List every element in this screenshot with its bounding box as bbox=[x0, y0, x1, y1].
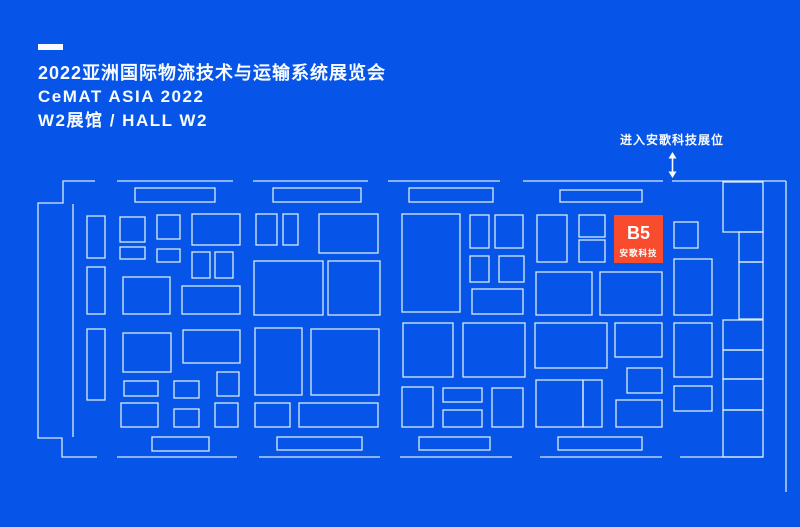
booth-rect bbox=[723, 182, 763, 232]
booth-rect bbox=[403, 323, 453, 377]
booth-rect bbox=[674, 386, 712, 411]
booth-rect bbox=[182, 286, 240, 314]
booth-rect bbox=[319, 214, 378, 253]
booth-rect bbox=[174, 381, 199, 398]
booth-rect bbox=[739, 262, 763, 319]
booth-rect bbox=[120, 217, 145, 242]
booth-rect bbox=[470, 256, 489, 282]
booth-rect bbox=[463, 323, 525, 377]
booth-rect bbox=[174, 409, 199, 427]
booth-rect bbox=[328, 261, 380, 315]
booth-b5-company: 安歌科技 bbox=[619, 248, 657, 258]
booth-rect bbox=[537, 215, 567, 262]
booth-rect bbox=[121, 403, 158, 427]
booth-rect bbox=[723, 320, 763, 350]
booth-rect bbox=[157, 215, 180, 239]
booth-rect bbox=[87, 267, 105, 314]
booth-rect bbox=[723, 379, 763, 410]
booth-rect bbox=[472, 289, 523, 314]
booth-rect bbox=[558, 437, 642, 450]
booth-rect bbox=[470, 215, 489, 248]
booth-rect bbox=[183, 330, 240, 363]
booth-rect bbox=[255, 403, 290, 427]
booth-rect bbox=[495, 215, 523, 248]
hall-wall-line bbox=[38, 181, 97, 457]
booth-rect bbox=[123, 333, 171, 372]
booth-rect bbox=[409, 188, 493, 202]
booth-rect bbox=[583, 380, 602, 427]
booth-rect bbox=[443, 388, 482, 402]
booth-rect bbox=[536, 272, 592, 315]
booth-rect bbox=[192, 214, 240, 245]
double-arrow-icon bbox=[666, 152, 679, 178]
booth-rect bbox=[277, 437, 362, 450]
booth-rect bbox=[535, 323, 607, 368]
booth-b5-id: B5 bbox=[627, 223, 650, 243]
booth-rect bbox=[419, 437, 490, 450]
booth-rect bbox=[299, 403, 378, 427]
entrance-label: 进入安歌科技展位 bbox=[620, 131, 724, 148]
booth-rect bbox=[157, 249, 180, 262]
booth-rect bbox=[443, 410, 482, 427]
booth-rect bbox=[135, 188, 215, 202]
booth-rect bbox=[256, 214, 277, 245]
booth-rect bbox=[311, 329, 379, 395]
booth-rect bbox=[560, 190, 642, 202]
booth-rect bbox=[87, 216, 105, 258]
booth-rect bbox=[283, 214, 298, 245]
booth-rect bbox=[536, 380, 583, 427]
booth-rect bbox=[402, 387, 433, 427]
exhibition-map: B5安歌科技 2022亚洲国际物流技术与运输系统展览会 CeMAT ASIA 2… bbox=[0, 0, 800, 527]
booth-rect bbox=[215, 403, 238, 427]
booth-rect bbox=[615, 323, 662, 357]
booth-rect bbox=[402, 214, 460, 312]
booth-rect bbox=[723, 410, 763, 457]
event-name: CeMAT ASIA 2022 bbox=[38, 85, 386, 109]
booth-rect bbox=[674, 222, 698, 248]
booth-rect bbox=[674, 323, 712, 377]
booth-rect bbox=[579, 240, 605, 262]
booth-rect bbox=[192, 252, 210, 278]
booth-rect bbox=[579, 215, 605, 237]
booth-rect bbox=[255, 328, 302, 395]
page-title: 2022亚洲国际物流技术与运输系统展览会 bbox=[38, 61, 386, 85]
booth-rect bbox=[120, 247, 145, 259]
booth-rect bbox=[499, 256, 524, 282]
entrance-annotation: 进入安歌科技展位 bbox=[602, 131, 742, 178]
booth-rect bbox=[124, 381, 158, 396]
header: 2022亚洲国际物流技术与运输系统展览会 CeMAT ASIA 2022 W2展… bbox=[38, 44, 386, 133]
hall-label: W2展馆 / HALL W2 bbox=[38, 109, 386, 133]
booth-rect bbox=[152, 437, 209, 451]
booth-rect bbox=[616, 400, 662, 427]
booth-rect bbox=[123, 277, 170, 314]
booth-rect bbox=[87, 329, 105, 400]
booth-rect bbox=[273, 188, 361, 202]
booth-rect bbox=[627, 368, 662, 393]
booth-rect bbox=[674, 259, 712, 315]
accent-dash-icon bbox=[38, 44, 63, 50]
booth-rect bbox=[600, 272, 662, 315]
booth-rect bbox=[254, 261, 323, 315]
booth-rect bbox=[492, 388, 523, 427]
booth-rect bbox=[739, 232, 763, 262]
booth-rect bbox=[723, 350, 763, 379]
booth-rect bbox=[215, 252, 233, 278]
booth-b5[interactable]: B5安歌科技 bbox=[614, 215, 663, 263]
booth-rect bbox=[217, 372, 239, 396]
